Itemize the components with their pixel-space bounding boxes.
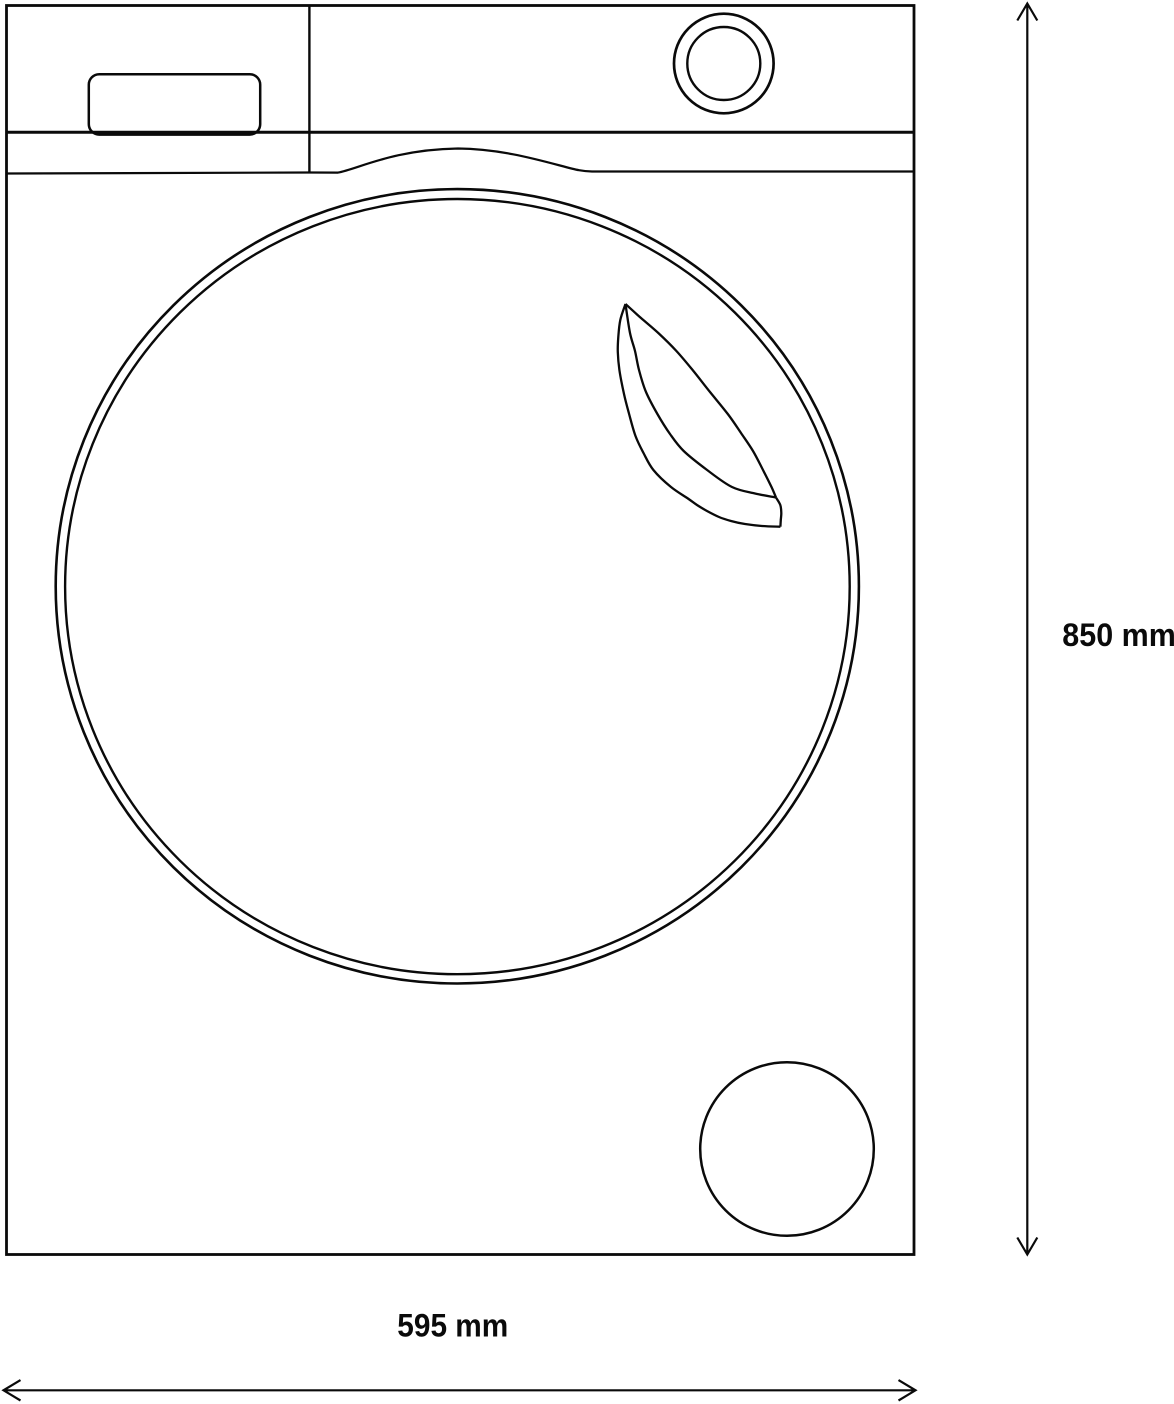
- svg-text:595 mm: 595 mm: [397, 1308, 508, 1344]
- svg-text:850 mm: 850 mm: [1062, 617, 1174, 653]
